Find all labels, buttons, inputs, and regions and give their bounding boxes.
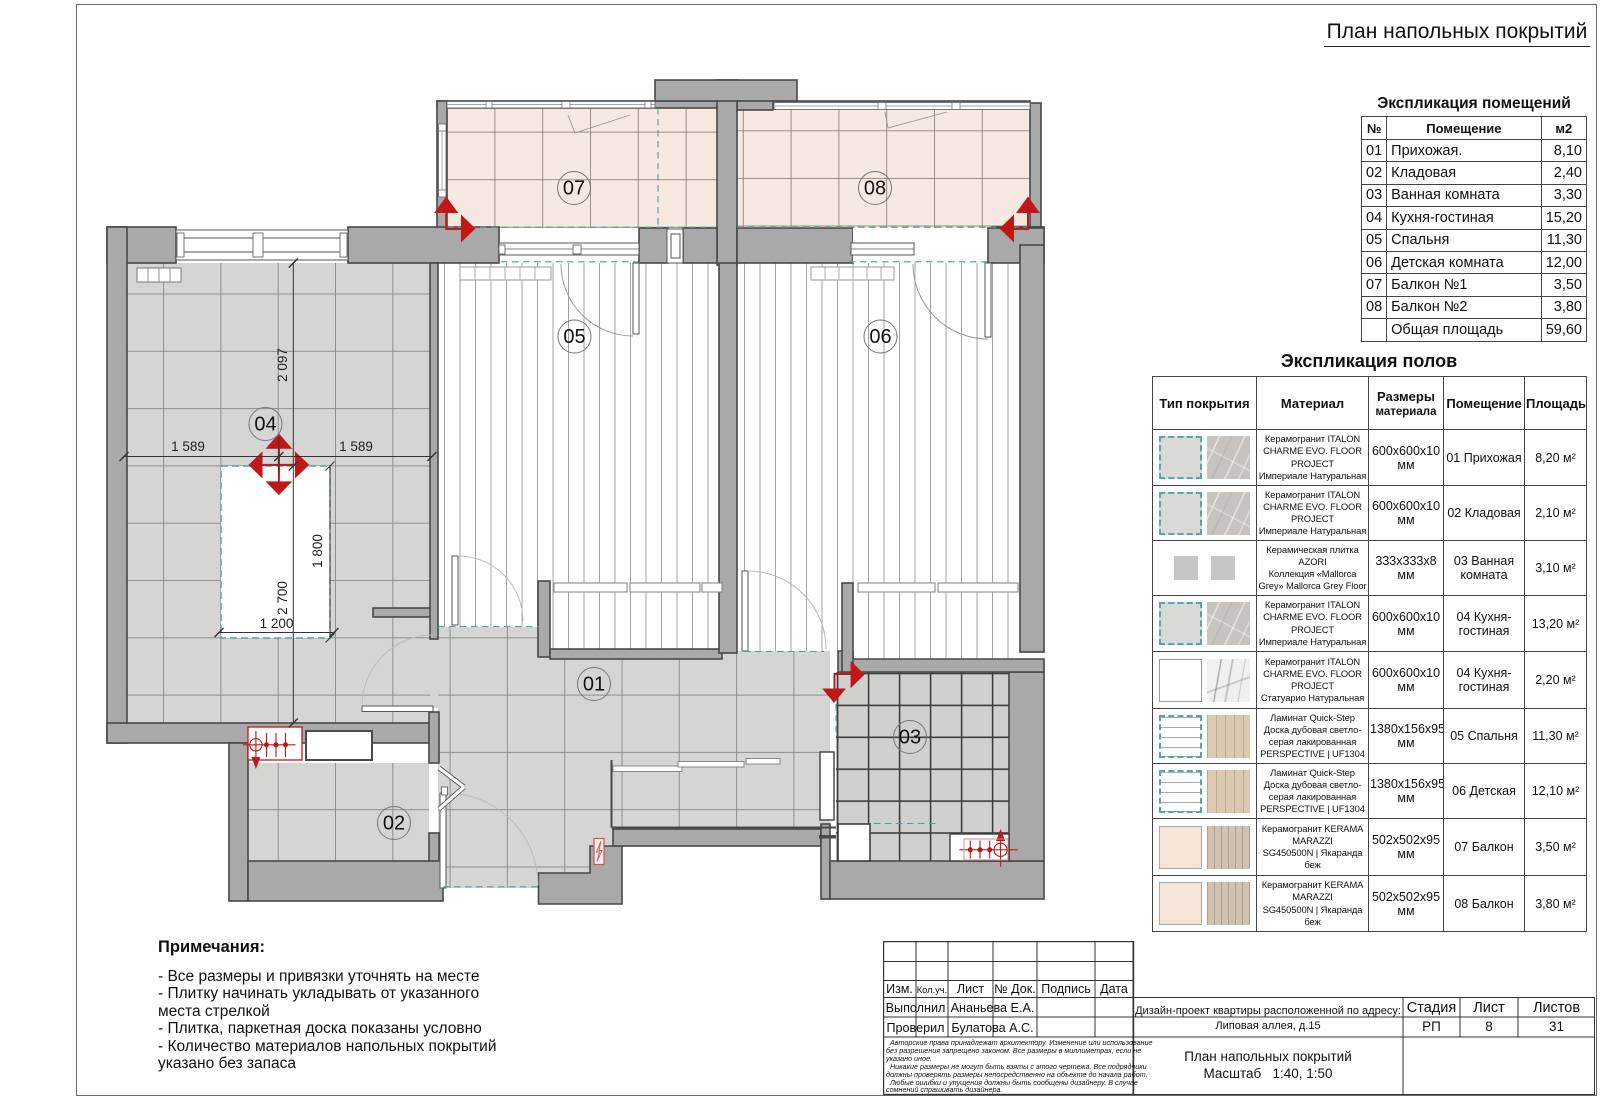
svg-text:03: 03: [899, 727, 921, 749]
svg-text:01: 01: [583, 674, 605, 696]
svg-text:1 800: 1 800: [310, 534, 325, 568]
svg-text:08: 08: [864, 178, 886, 200]
svg-text:1 589: 1 589: [171, 439, 205, 454]
svg-text:2 097: 2 097: [275, 348, 290, 382]
svg-text:05: 05: [563, 326, 585, 348]
svg-text:1 200: 1 200: [260, 616, 294, 631]
svg-text:02: 02: [383, 813, 405, 835]
svg-text:06: 06: [869, 326, 891, 348]
svg-text:07: 07: [563, 178, 585, 200]
svg-text:04: 04: [254, 414, 276, 436]
svg-text:1 589: 1 589: [339, 439, 373, 454]
svg-text:2 700: 2 700: [275, 581, 290, 615]
